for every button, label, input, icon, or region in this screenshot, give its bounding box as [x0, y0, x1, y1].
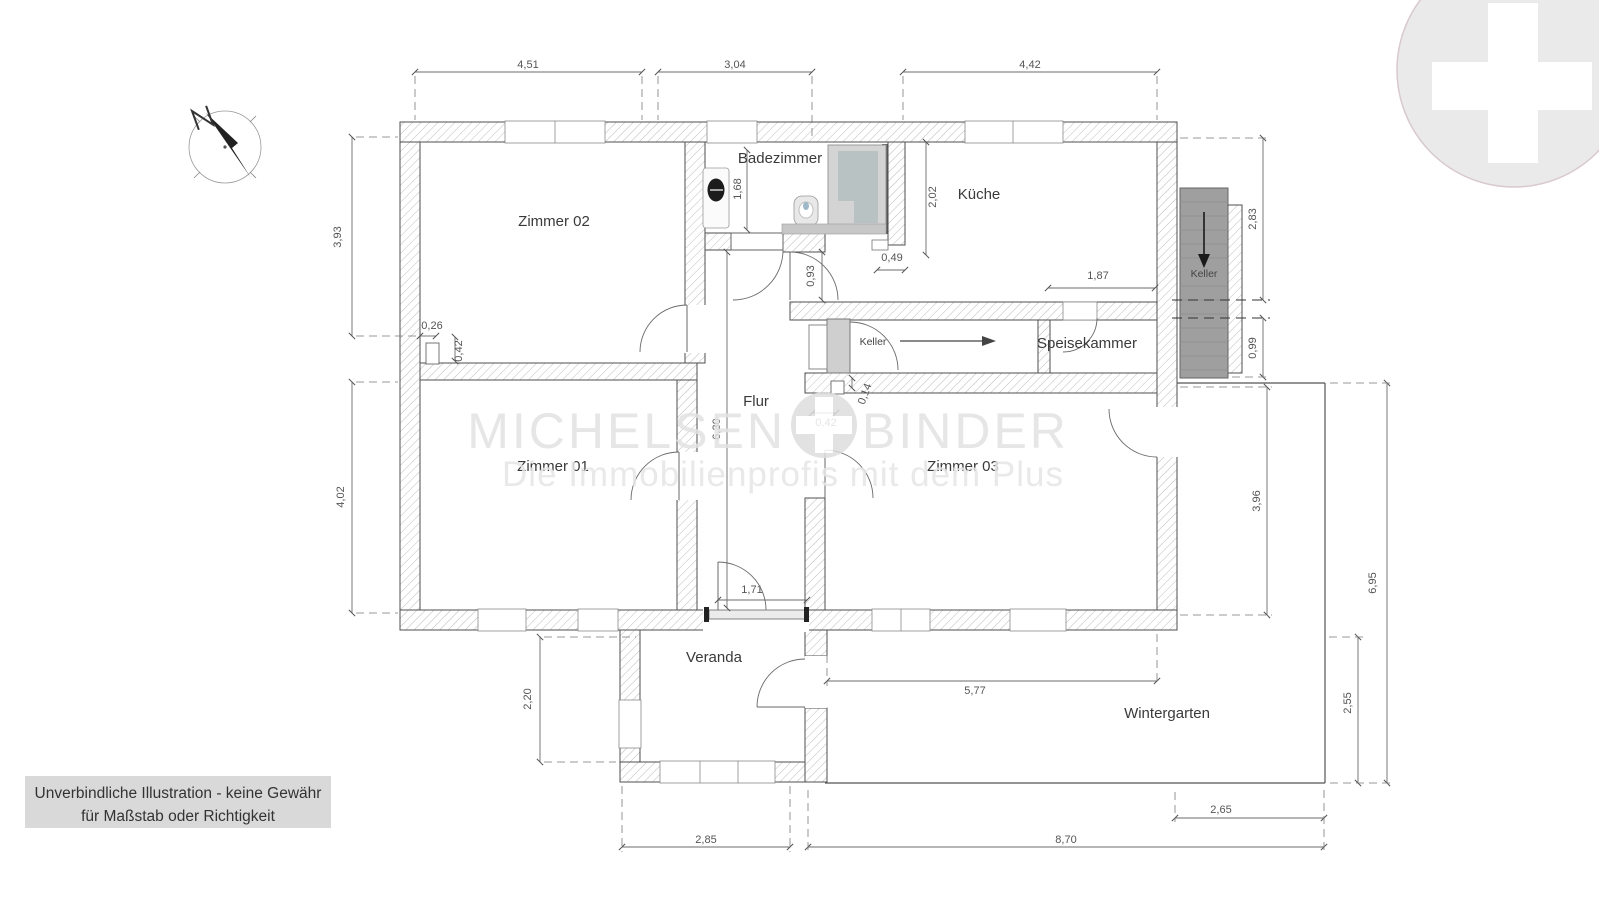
watermark-brand-left: MICHELSEN [467, 403, 786, 459]
room-label-badezimmer: Badezimmer [738, 150, 822, 167]
door-gap-wintergarten [1156, 407, 1178, 457]
disclaimer-line1: Unverbindliche Illustration - keine Gewä… [25, 782, 331, 805]
dim-kueche-left: 2,02 [927, 186, 939, 207]
dim-top-flur: 3,04 [724, 59, 745, 71]
dim-left-zimmer02: 3,93 [332, 226, 344, 247]
dim-bottom-veranda: 2,85 [695, 834, 716, 846]
threshold-veranda [709, 610, 805, 619]
dim-bad-depth: 1,68 [732, 178, 744, 199]
wall-exterior-right [1157, 142, 1177, 610]
watermark-plus-icon [791, 392, 857, 458]
dim-right-keller-upper: 2,83 [1247, 208, 1259, 229]
room-label-keller-passage: Keller [860, 336, 887, 348]
brand-logo-icon [1397, 0, 1599, 187]
window-veranda [660, 761, 775, 783]
door-gap-veranda-side [805, 656, 827, 708]
watermark-tagline: Die Immobilienprofis mit dem Plus [502, 455, 1064, 494]
dim-kueche-stub: 0,49 [881, 252, 902, 264]
room-label-kueche: Küche [958, 186, 1001, 203]
door-arc-wintergarten [1109, 409, 1157, 457]
dim-left-zimmer01: 4,02 [335, 486, 347, 507]
window-kueche [965, 121, 1063, 143]
floorplan-drawing: 4,51 3,04 4,42 3,93 4,02 2,20 1,68 2,02 … [0, 0, 1599, 900]
dim-zimmer03-side: 3,96 [1251, 490, 1263, 511]
keller-direction-arrow [900, 336, 996, 346]
bathtub-inner [838, 151, 878, 201]
room-label-wintergarten: Wintergarten [1124, 705, 1210, 722]
door-arc-badezimmer [733, 250, 783, 300]
dim-left-veranda: 2,20 [522, 688, 534, 709]
dim-speisekammer-width: 1,87 [1087, 270, 1108, 282]
wall-zimmer02-zimmer01 [420, 363, 697, 380]
dim-top-zimmer02: 4,51 [517, 59, 538, 71]
dim-chimney-depth: 0,42 [453, 340, 465, 361]
dim-bad-door: 0,93 [805, 265, 817, 286]
room-label-zimmer02: Zimmer 02 [518, 213, 590, 230]
door-arc-veranda-side [757, 659, 805, 707]
bath-counter [782, 224, 886, 234]
dim-bottom-right: 2,65 [1210, 804, 1231, 816]
dim-veranda-door: 1,71 [741, 584, 762, 596]
dim-right-keller-lower: 0,99 [1247, 337, 1259, 358]
door-gap-speisekammer [1063, 302, 1097, 320]
window-zimmer01-a [478, 609, 526, 631]
disclaimer-line2: für Maßstab oder Richtigkeit [25, 805, 331, 828]
dim-wintergarten-top: 5,77 [964, 685, 985, 697]
wall-bad-stub-right [783, 233, 825, 252]
watermark: MICHELSEN BINDER Die Immobilienprofis mi… [467, 392, 1069, 494]
pillar-block [831, 381, 844, 394]
wall-bad-kueche [888, 142, 905, 245]
watermark-brand-right: BINDER [862, 403, 1069, 459]
door-block-keller-passage [827, 319, 850, 373]
window-veranda-left [619, 700, 641, 748]
wall-keller-passage-bottom [805, 373, 1157, 393]
north-compass-icon [189, 106, 261, 183]
window-zimmer03-b [1010, 609, 1066, 631]
chimney-block [426, 343, 439, 364]
door-arc-zimmer02 [640, 305, 687, 352]
dim-bottom-wintergarten: 8,70 [1055, 834, 1076, 846]
wall-veranda-right-lower [805, 708, 827, 782]
window-zimmer01-b [578, 609, 618, 631]
room-label-keller-stairs: Keller [1191, 268, 1218, 280]
wall-kueche-bottom [790, 302, 1157, 320]
dim-top-kueche: 4,42 [1019, 59, 1040, 71]
disclaimer-box: Unverbindliche Illustration - keine Gewä… [25, 776, 331, 828]
wall-stub-049 [872, 240, 888, 250]
door-leaf-keller-passage [809, 325, 827, 369]
dim-right-total: 6,95 [1367, 572, 1379, 593]
wall-exterior-left [400, 142, 420, 630]
dim-wintergarten-right: 2,55 [1342, 692, 1354, 713]
window-badezimmer [707, 121, 757, 143]
room-label-speisekammer: Speisekammer [1037, 335, 1137, 352]
dim-chimney-width: 0,26 [421, 320, 442, 332]
wall-flur-zimmer03-lower [805, 498, 825, 610]
floorplan-page: 4,51 3,04 4,42 3,93 4,02 2,20 1,68 2,02 … [0, 0, 1599, 900]
wall-keller-enclosure [1228, 205, 1242, 373]
wall-veranda-right-upper [805, 630, 827, 656]
wall-bad-stub-left [705, 233, 731, 250]
room-label-veranda: Veranda [686, 649, 743, 666]
door-slab-badezimmer [731, 233, 783, 250]
